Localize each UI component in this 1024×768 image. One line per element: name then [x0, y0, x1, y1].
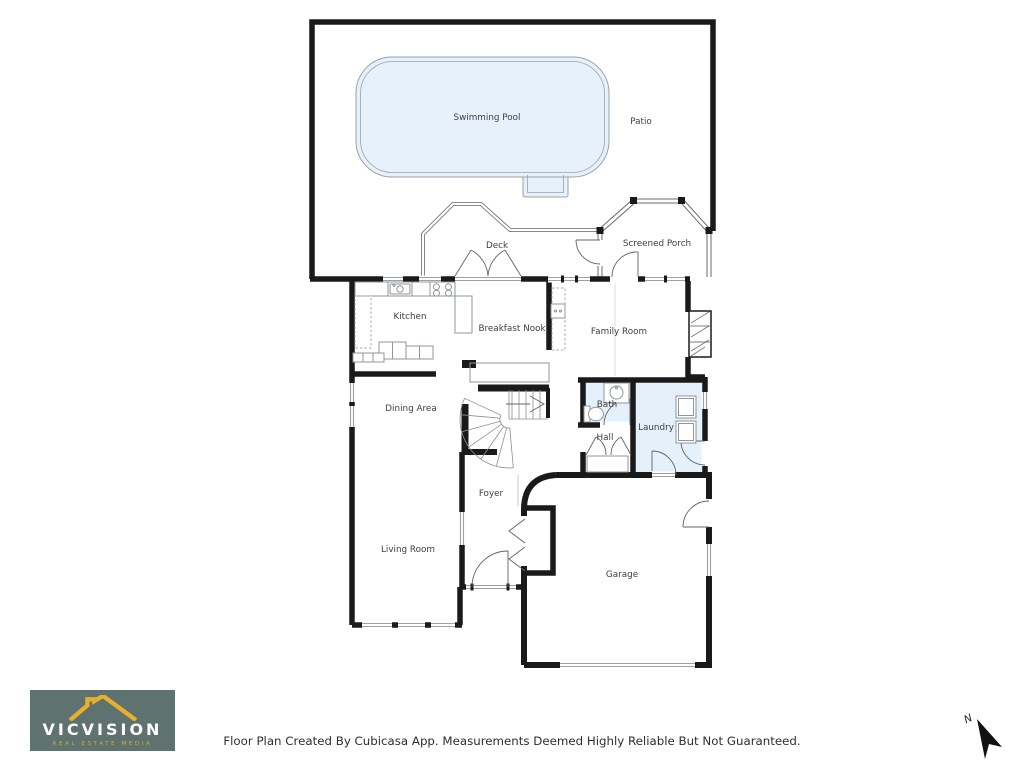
foyer-closet-walls [524, 508, 553, 573]
label-breakfast-nook: Breakfast Nook [478, 324, 546, 334]
fireplace [689, 311, 711, 357]
label-dining-area: Dining Area [385, 404, 436, 414]
staircase [460, 363, 549, 468]
north-label: N [962, 712, 974, 726]
pool-seam [526, 168, 566, 176]
label-kitchen: Kitchen [393, 312, 426, 322]
label-deck: Deck [486, 241, 509, 251]
footer-disclaimer: Floor Plan Created By Cubicasa App. Meas… [0, 734, 1024, 748]
stair-corner-stub [462, 360, 476, 368]
garage-rounded-corner [524, 475, 556, 508]
label-bath: Bath [597, 400, 617, 410]
deck-door-left [455, 250, 488, 276]
garage-side-door [683, 501, 709, 527]
kitchen-cabinet-low-3 [353, 353, 384, 362]
nook-appliance [551, 304, 565, 318]
label-laundry: Laundry [638, 423, 674, 433]
porch-deck-door [576, 240, 600, 264]
label-foyer: Foyer [479, 489, 504, 499]
label-screened-porch: Screened Porch [623, 239, 691, 249]
front-door [472, 551, 508, 587]
nook-counter [552, 288, 565, 350]
label-family-room: Family Room [591, 327, 647, 337]
kitchen-fixtures [353, 282, 565, 362]
label-swimming-pool: Swimming Pool [454, 113, 521, 123]
stair-overhang [470, 363, 549, 382]
porch-door [612, 252, 638, 277]
screened-porch-walls [576, 197, 713, 277]
hall-closet-box [587, 456, 628, 472]
label-patio: Patio [630, 117, 652, 127]
floor-plan-page: Swimming Pool Patio Deck Screened Porch … [0, 0, 1024, 768]
logo-roof-icon [55, 695, 151, 721]
floor-plan-drawing: Swimming Pool Patio Deck Screened Porch … [0, 0, 1024, 768]
kitchen-cabinet-left [355, 296, 371, 348]
kitchen-peninsula [455, 296, 472, 333]
hall-closet-door-right [611, 437, 631, 455]
label-garage: Garage [606, 570, 638, 580]
swimming-pool-shape [356, 57, 609, 197]
porch-deck-door-opening [597, 240, 604, 266]
deck-door-right [488, 250, 521, 276]
label-hall: Hall [597, 433, 614, 443]
deck-railing [423, 204, 598, 277]
label-living-room: Living Room [381, 545, 435, 555]
